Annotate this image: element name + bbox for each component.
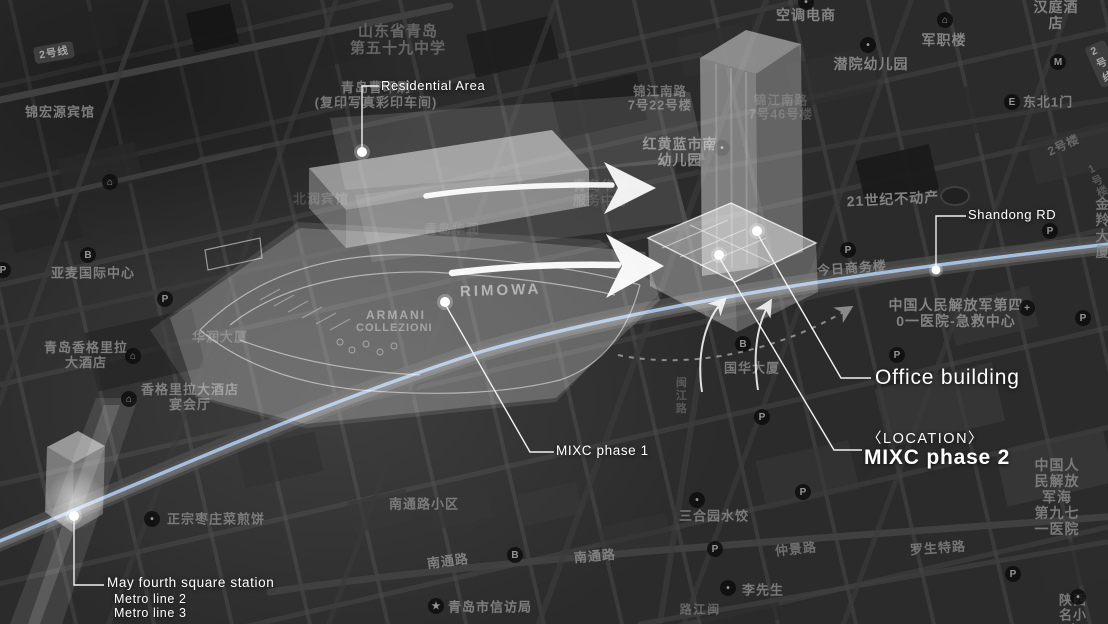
mass-office-tower	[700, 30, 803, 276]
map-label: 仲景路	[774, 540, 817, 559]
map-label: 闽江路	[677, 603, 718, 617]
map-poi-icon: +	[1019, 300, 1035, 316]
map-label-layer: 山东省青岛 第五十九中学空调电商军职楼汉庭酒店潜院幼儿园东北1门锦宏源宾馆青岛曹…	[0, 0, 1108, 624]
map-label: 南通路	[573, 548, 616, 567]
map-label: 21世纪不动产	[846, 189, 939, 210]
map-label: 锦江南路 7号22号楼	[628, 85, 692, 114]
map-label: 汉庭酒店	[1030, 0, 1082, 31]
map-label: 李先生	[742, 584, 784, 599]
leader-lines	[74, 86, 966, 585]
site-plan-brand-collezioni: COLLEZIONI	[356, 322, 433, 334]
metro-line-badge: 2号线	[33, 41, 75, 65]
map-label: 金羚大厦	[1096, 196, 1108, 260]
map-label: 亚麦国际中心	[51, 267, 135, 282]
label-may-fourth-square-station: May fourth square station	[107, 575, 274, 590]
map-poi-icon: P	[707, 541, 723, 557]
map-label: 香格里拉大酒店 宴会厅	[141, 383, 239, 413]
map-poi-icon: B	[507, 547, 523, 563]
map-label: 中国人民解放军第四 0一医院-急救中心	[889, 297, 1024, 329]
map-poi-icon: ⌂	[937, 12, 953, 28]
mass-residential-slab	[309, 92, 705, 262]
map-poi-icon: P	[840, 242, 856, 258]
metro-corridor	[10, 398, 138, 624]
map-label: 青岛曹印刷 (复印写真彩印车间)	[315, 81, 438, 111]
label-shandong-rd: Shandong RD	[968, 207, 1056, 222]
site-location-diagram: 山东省青岛 第五十九中学空调电商军职楼汉庭酒店潜院幼儿园东北1门锦宏源宾馆青岛曹…	[0, 0, 1108, 624]
map-label: 陕西名小吃	[1056, 594, 1091, 624]
leader-dots	[66, 144, 943, 524]
map-poi-icon: P	[1005, 566, 1021, 582]
map-poi-icon: ⌂	[125, 348, 141, 364]
metro-line-badge: 2号线	[1084, 40, 1108, 89]
map-label: 潜院幼儿园	[834, 56, 909, 72]
site-plan-brand-armani: ARMANI	[366, 308, 426, 322]
map-label: 南通路	[426, 552, 470, 572]
map-label: 山东省青岛 第五十九中学	[350, 23, 446, 58]
site-plan-brand-rimowa: RIMOWA	[460, 281, 542, 301]
map-poi-icon: P	[1075, 310, 1091, 326]
map-poi-icon: P	[1042, 223, 1058, 239]
map-poi-icon: P	[157, 291, 173, 307]
map-label: 青岛华润	[424, 223, 480, 238]
map-label: 东北1门	[1023, 96, 1073, 111]
annotation-layer: Residential Area Shandong RD Office buil…	[0, 0, 1108, 624]
map-label: 今日商务楼	[817, 259, 888, 279]
map-poi-icon: M	[1050, 54, 1066, 70]
map-poi-icon: ★	[428, 598, 444, 614]
map-poi-icon: •	[689, 492, 705, 508]
map-poi-icon: P	[0, 262, 11, 278]
map-poi-icon: P	[889, 347, 905, 363]
map-label: 青岛华润 服务中心	[573, 179, 629, 209]
map-label: 闽江路	[674, 377, 687, 416]
map-label: 正宗枣庄菜煎饼	[167, 513, 265, 528]
map-label: 中国人民解放军海 第九七一医院	[1032, 457, 1083, 537]
map-label: 华润大厦	[192, 331, 248, 346]
map-label: 空调电商	[776, 7, 836, 23]
map-poi-icon: •	[714, 140, 730, 156]
label-mixc-phase-1: MIXC phase 1	[556, 443, 649, 458]
map-poi-icon: ⌂	[121, 391, 137, 407]
map-base	[0, 0, 1108, 624]
map-label: 青岛香格里拉 大酒店	[44, 341, 128, 371]
map-poi-icon: •	[860, 37, 876, 53]
map-label: 1号楼	[1085, 161, 1108, 200]
label-location-tag: 〈LOCATION〉	[867, 427, 984, 448]
map-poi-icon: E	[1004, 94, 1020, 110]
shandong-road-highlight	[0, 243, 1108, 548]
map-label: 罗生特路	[910, 540, 967, 559]
map-label: 红黄蓝市南 幼儿园	[643, 136, 718, 168]
map-roads	[0, 0, 1108, 624]
direction-arrows	[426, 162, 850, 392]
map-poi-icon: P	[795, 484, 811, 500]
map-poi-icon: •	[1070, 589, 1086, 605]
map-poi-icon: P	[754, 409, 770, 425]
map-label: 军职楼	[922, 32, 967, 48]
map-label: 北润宾馆	[293, 193, 349, 208]
label-mixc-phase-2: MIXC phase 2	[864, 446, 1010, 470]
mass-mixc-phase2-box	[648, 203, 818, 332]
map-poi-icon: B	[735, 336, 751, 352]
map-label: 锦宏源宾馆	[25, 106, 95, 121]
map-label: 2号楼	[1046, 133, 1082, 160]
map-label: 国华大厦	[724, 362, 780, 377]
mass-mixc-phase1-site	[150, 222, 662, 428]
map-label: 锦江南路 7号46号楼	[749, 94, 813, 123]
label-residential-area: Residential Area	[381, 78, 485, 93]
map-poi-icon: •	[798, 0, 814, 10]
diagram-overlay	[0, 0, 1108, 624]
map-blocks	[7, 3, 1108, 624]
map-poi-icon: •	[720, 580, 736, 596]
map-poi-icon: B	[80, 247, 96, 263]
map-label: 青岛市信访局	[448, 601, 532, 616]
map-label: 南通路小区	[389, 498, 459, 513]
map-poi-icon: ⌂	[102, 174, 118, 190]
label-metro-line-2: Metro line 2	[114, 592, 187, 606]
label-metro-line-3: Metro line 3	[114, 606, 187, 620]
map-label: 三合园水饺	[679, 510, 749, 525]
mass-station-box	[45, 431, 105, 532]
label-office-building: Office building	[875, 366, 1020, 390]
map-poi-icon: •	[144, 511, 160, 527]
